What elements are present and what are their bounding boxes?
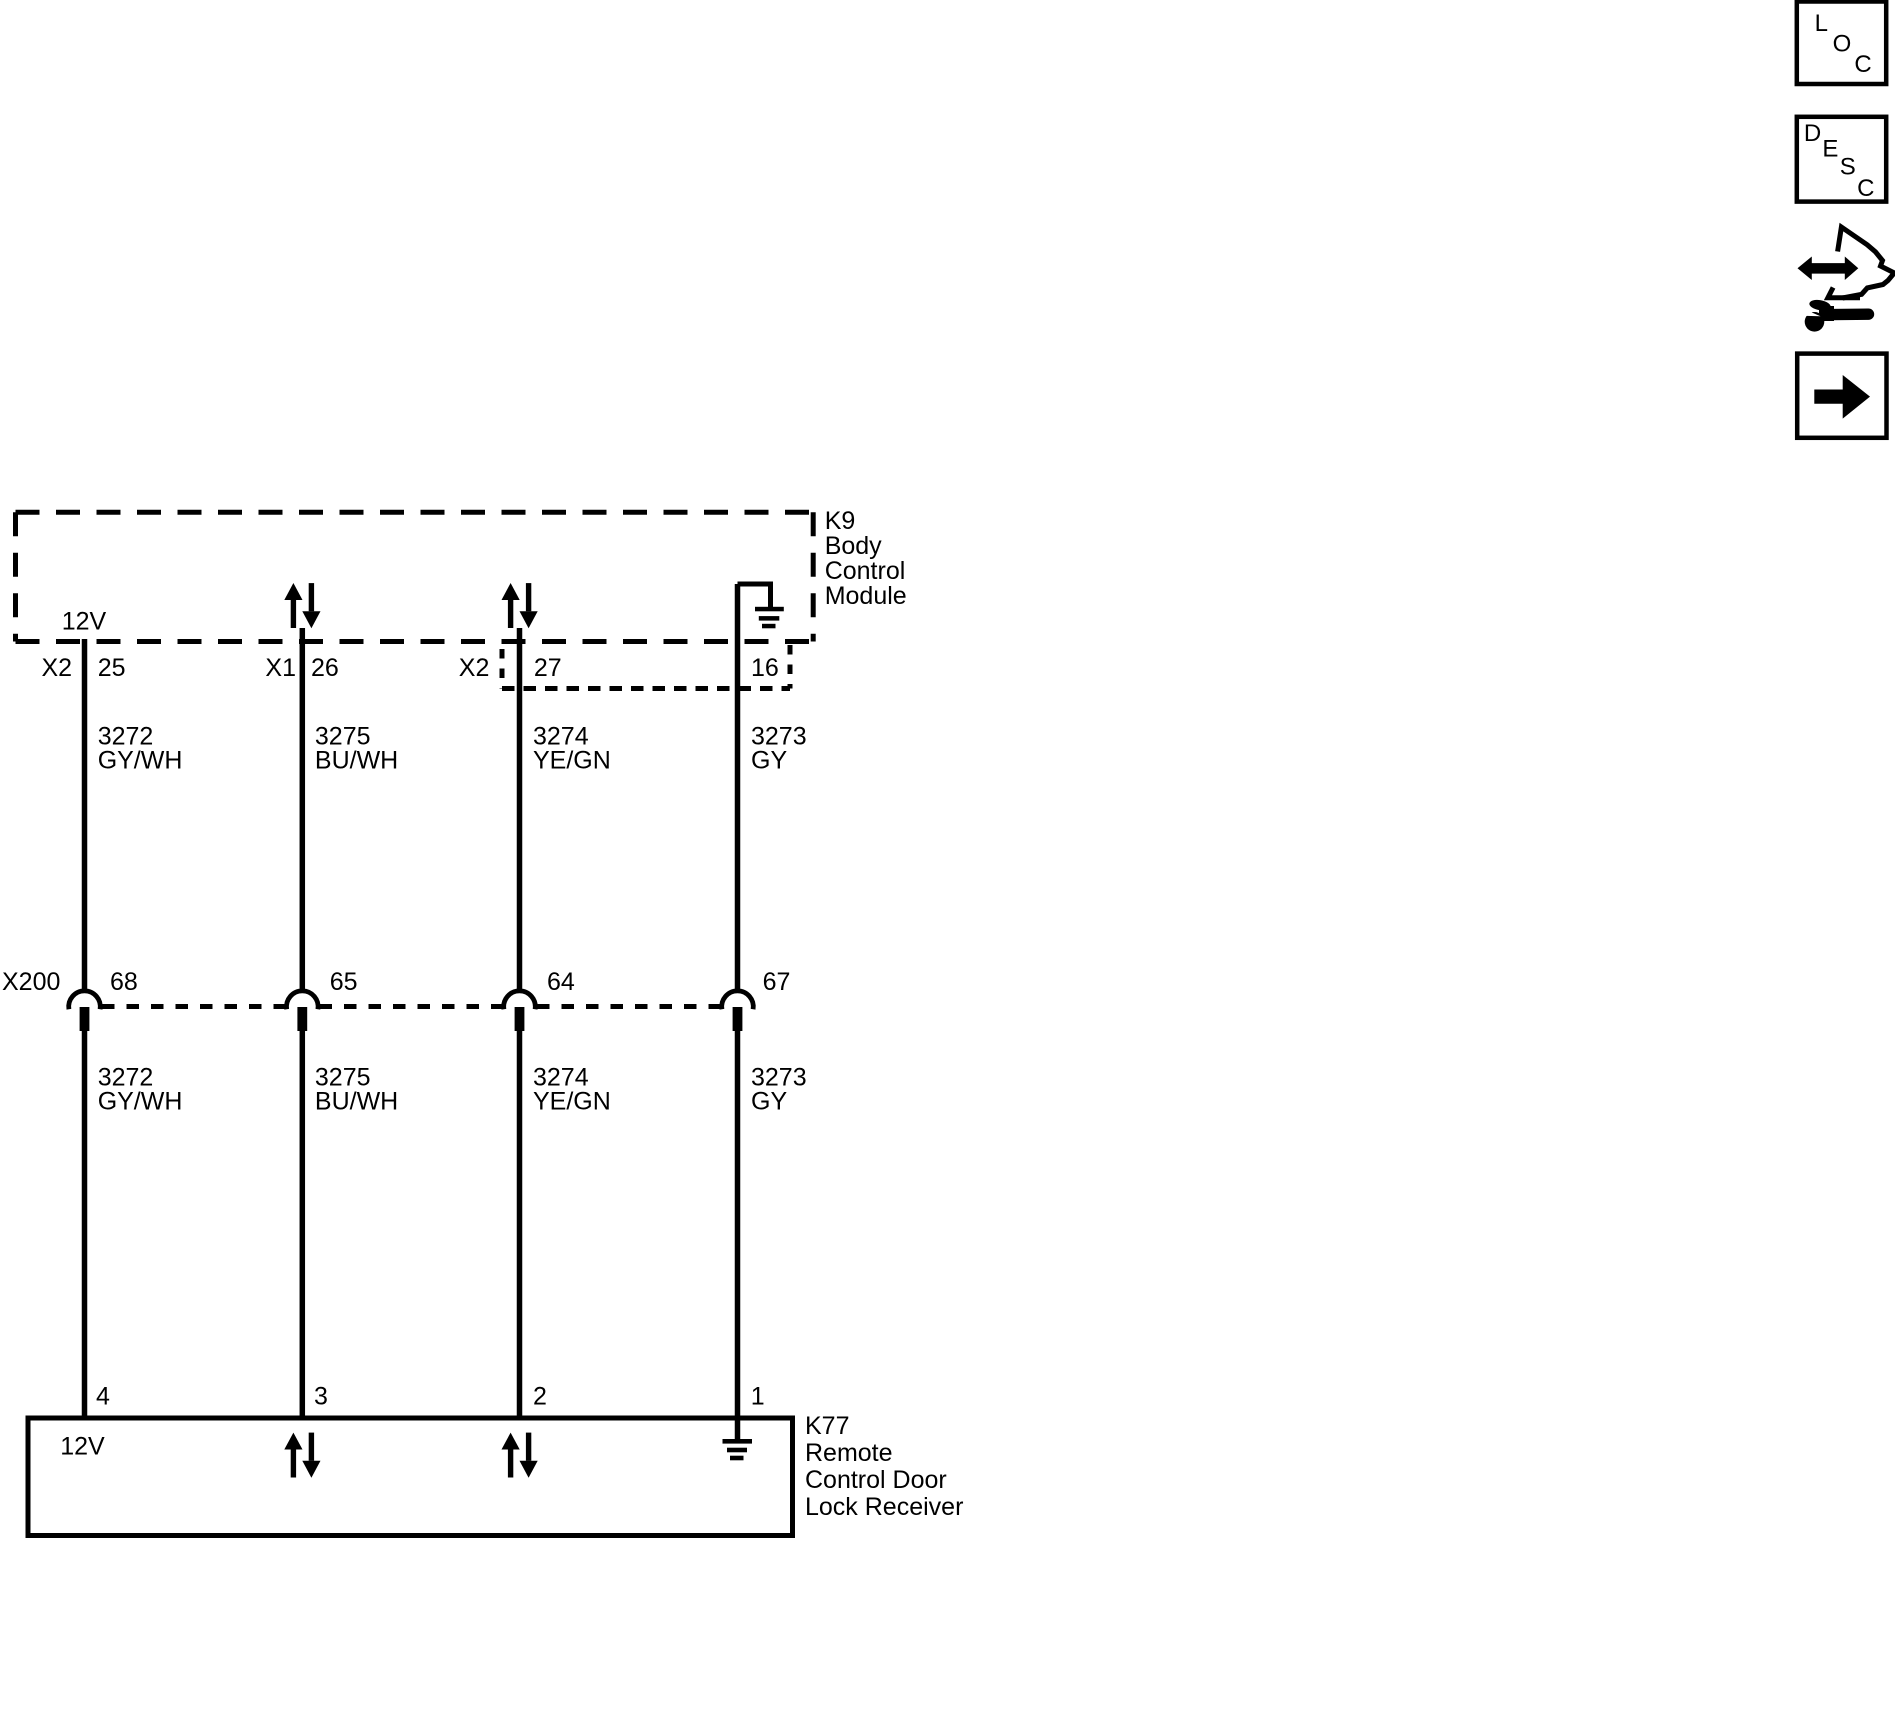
svg-text:YE/GN: YE/GN — [533, 746, 611, 774]
svg-text:D: D — [1804, 120, 1821, 147]
svg-text:O: O — [1833, 31, 1852, 58]
svg-text:GY/WH: GY/WH — [98, 746, 183, 774]
svg-text:X2: X2 — [42, 654, 73, 682]
svg-text:C: C — [1854, 51, 1871, 78]
svg-text:C: C — [1857, 175, 1874, 202]
svg-text:E: E — [1822, 136, 1838, 163]
svg-text:S: S — [1840, 154, 1856, 181]
svg-text:GY: GY — [751, 746, 787, 774]
svg-text:Body: Body — [825, 532, 882, 560]
svg-text:GY: GY — [751, 1088, 787, 1116]
svg-text:Control Door: Control Door — [805, 1466, 947, 1494]
svg-text:16: 16 — [751, 654, 779, 682]
svg-text:64: 64 — [547, 968, 575, 996]
svg-text:BU/WH: BU/WH — [315, 746, 398, 774]
svg-text:Control: Control — [825, 557, 906, 585]
svg-text:X2: X2 — [459, 654, 490, 682]
svg-text:2: 2 — [533, 1383, 547, 1411]
svg-text:27: 27 — [534, 654, 562, 682]
svg-text:25: 25 — [98, 654, 126, 682]
svg-text:Lock Receiver: Lock Receiver — [805, 1493, 963, 1521]
svg-text:12V: 12V — [62, 608, 107, 636]
svg-text:1: 1 — [751, 1383, 765, 1411]
svg-text:YE/GN: YE/GN — [533, 1088, 611, 1116]
svg-text:X200: X200 — [2, 968, 60, 996]
svg-text:12V: 12V — [60, 1433, 105, 1461]
svg-text:65: 65 — [330, 968, 358, 996]
svg-text:Module: Module — [825, 582, 907, 610]
svg-text:X1: X1 — [265, 654, 296, 682]
svg-text:4: 4 — [96, 1383, 110, 1411]
svg-text:K9: K9 — [825, 507, 856, 535]
svg-text:K77: K77 — [805, 1412, 849, 1440]
svg-text:Remote: Remote — [805, 1439, 893, 1467]
svg-text:68: 68 — [110, 968, 138, 996]
svg-text:67: 67 — [763, 968, 791, 996]
svg-text:3: 3 — [314, 1383, 328, 1411]
svg-text:BU/WH: BU/WH — [315, 1088, 398, 1116]
svg-text:26: 26 — [311, 654, 339, 682]
svg-text:GY/WH: GY/WH — [98, 1088, 183, 1116]
svg-text:L: L — [1815, 10, 1828, 37]
